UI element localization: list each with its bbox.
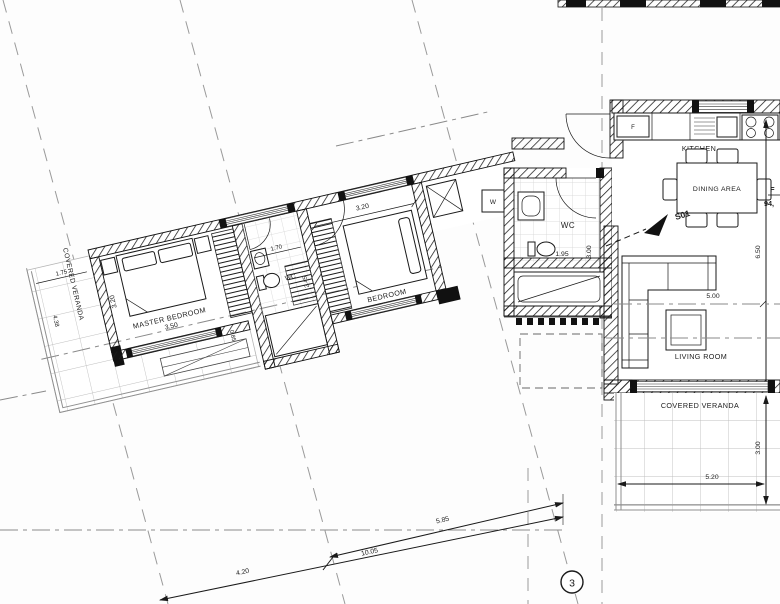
dim-420: 4.20 [235, 568, 250, 578]
veranda-right-width-dim: 5.20 [705, 474, 718, 481]
bedroom-wing: 1.75 4.38 COVERED VERANDA 0.85 [18, 145, 548, 418]
overall-dimensions: 4.20 10.05 5.85 [160, 494, 563, 600]
centerline-left-stub [0, 391, 46, 400]
dim-tick [323, 557, 333, 570]
chair [717, 213, 738, 227]
living-label: LIVING ROOM [675, 352, 727, 361]
entry-closet [426, 180, 462, 218]
bathtub [514, 272, 604, 306]
kitchen-counter: F [614, 113, 780, 140]
washer-label: W [490, 199, 497, 206]
chair [757, 179, 771, 200]
living-wing: F KITCHEN DINING AREA [604, 100, 780, 512]
floor-plan-canvas: 1.75 4.38 COVERED VERANDA 0.85 [0, 0, 780, 604]
wc-top-wall [504, 168, 566, 178]
roof-overhang-dashed [520, 334, 602, 388]
wc-left-wall [504, 168, 514, 316]
toilet-bowl [537, 242, 555, 256]
living-left-wall [604, 226, 618, 384]
veranda-right-depth-dim: 3.00 [755, 441, 762, 454]
washer-box: W [482, 190, 504, 212]
wc-bottom-wall [504, 258, 612, 268]
top-edge-wall-fragment [558, 0, 780, 7]
grid-bubble-number: 3 [569, 578, 575, 590]
chair [717, 149, 738, 163]
flat-name-text: F [770, 185, 775, 194]
chair [686, 149, 707, 163]
veranda-right: COVERED VERANDA 5.20 3.00 [614, 393, 780, 512]
stove [742, 115, 778, 140]
dim-585: 5.85 [435, 516, 450, 526]
coffee-table [666, 310, 706, 350]
nightstand [101, 257, 118, 275]
entrance-door [512, 114, 610, 158]
bath-bottom-wall [504, 306, 614, 316]
chair [663, 179, 677, 200]
wc-entry-depth-dim: 3.00 [586, 245, 593, 258]
dining-label: DINING AREA [693, 186, 741, 193]
living-depth-dim: 6.50 [755, 245, 762, 258]
wc-entry-width-dim: 1.95 [555, 251, 568, 258]
threshold-teeth [504, 317, 612, 325]
veranda-right-label: COVERED VERANDA [661, 401, 739, 410]
toilet-tank [528, 242, 535, 256]
living-width-dim: 5.00 [706, 293, 719, 300]
wc-entry-label: WC [561, 221, 575, 230]
floor-plan-drawing: 1.75 4.38 COVERED VERANDA 0.85 [0, 0, 780, 604]
grid-bubble-3: 3 [561, 571, 583, 593]
fridge-label: F [631, 125, 635, 131]
dimline-total [160, 517, 563, 600]
centerline-top-stub [336, 111, 492, 146]
nightstand [194, 236, 211, 254]
